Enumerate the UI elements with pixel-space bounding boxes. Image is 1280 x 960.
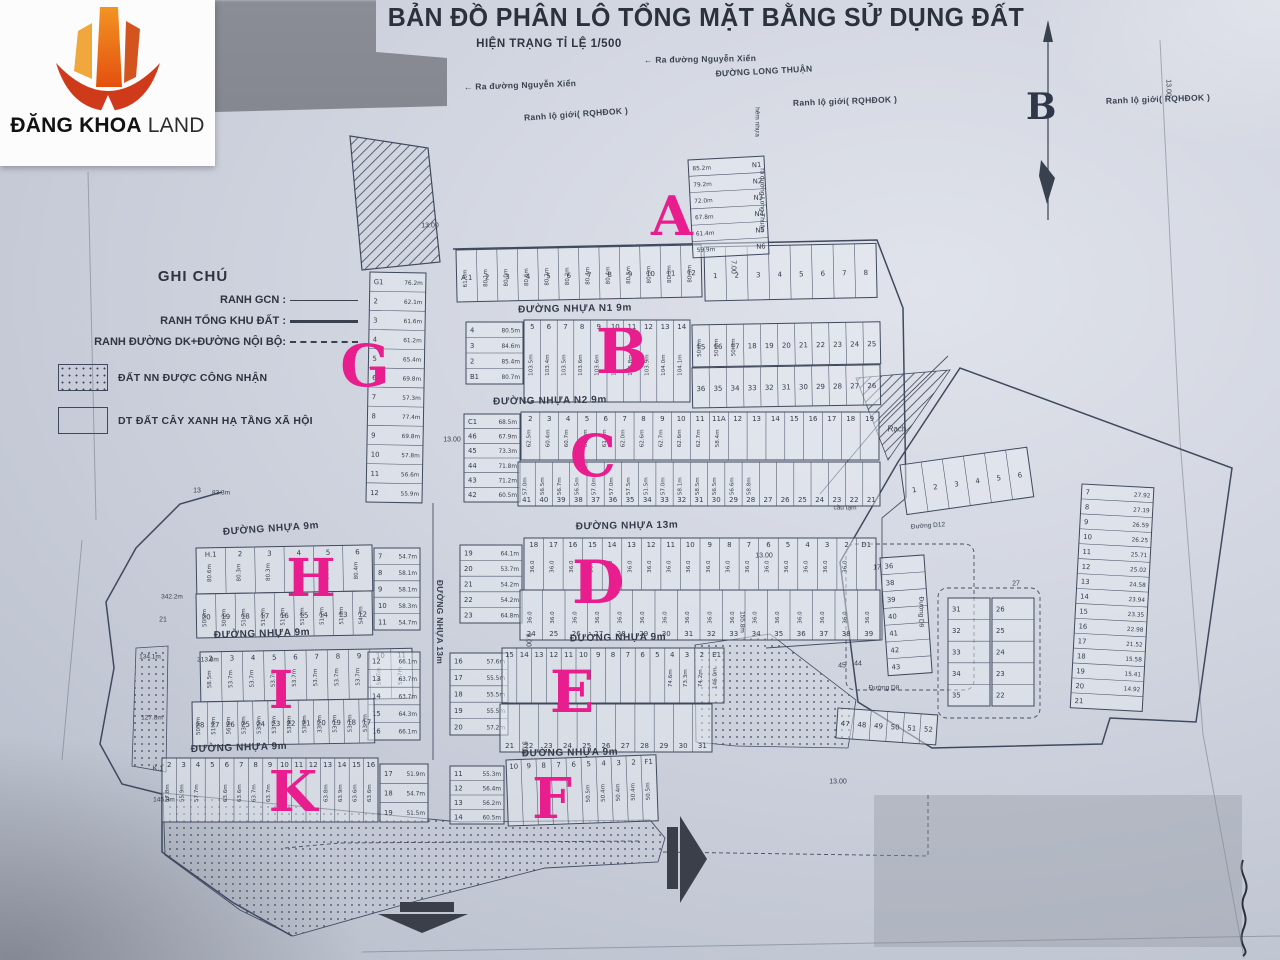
lot-area: 54.7m: [406, 792, 425, 798]
lot-area: 80.6m: [207, 564, 213, 582]
lot-area: 36.0: [804, 560, 810, 573]
lot-area: 69.8m: [402, 434, 421, 440]
lot-area: 61.0m: [583, 429, 589, 447]
lot-number: 7: [314, 653, 319, 661]
lot-number: 5: [326, 549, 331, 557]
lot-number: 12: [549, 651, 558, 659]
lot-number: 6: [571, 761, 576, 769]
lot-number: 9: [357, 652, 362, 660]
lot-number: 23: [833, 341, 842, 349]
lot-area: 63.7m: [398, 677, 417, 683]
lot-area: 36.0: [842, 611, 848, 624]
lot-area: 61.6m: [404, 319, 423, 325]
block-strip-d-west-col: 1964.1m2053.7m2154.2m2254.2m2364.8m: [460, 545, 522, 623]
lot-area: 23.94: [1128, 597, 1145, 604]
block-strip-f-west-col: 1155.3m1256.4m1356.2m1460.5m: [450, 766, 504, 824]
block-strip-k-row: 234567891011121314151657.8m55.9m57.7m63.…: [162, 758, 378, 822]
block-strip-c-west-col: C168.5m4667.9m4573.3m4471.8m4371.2m4260.…: [464, 414, 520, 502]
lot-number: 8: [1085, 503, 1090, 511]
land-subdivision-map-photo: A.12345678910111261.0m80.1m80.0m80.6m80.…: [0, 0, 1280, 960]
block-strip-east-mid-col1: 36383940414243: [880, 555, 932, 676]
lot-area: 36.0: [706, 560, 712, 573]
lot-number: 3: [756, 271, 761, 279]
lot-area: 68.5m: [498, 420, 517, 426]
lot-number: 25: [996, 627, 1005, 635]
lot-area: 51.2m: [319, 607, 325, 625]
lot-area: 53.7m: [355, 668, 361, 686]
lot-area: 74.6m: [668, 669, 674, 687]
lot-area: 62.6m: [677, 429, 683, 447]
lot-number: 10: [611, 323, 620, 331]
lot-number: 4: [805, 541, 810, 549]
lot-area: 55.9m: [180, 784, 186, 802]
lot-number: 18: [1077, 652, 1086, 660]
lot-area: 26.59: [1132, 523, 1149, 530]
lot-number: 9: [526, 762, 531, 770]
lot-area: 80.5m: [667, 265, 673, 283]
lot-number: 17: [827, 415, 836, 423]
lot-number: 22: [996, 692, 1005, 700]
lot-number: 20: [464, 565, 473, 573]
lot-area: 56.6m: [401, 472, 420, 478]
block-strip-i-bottom-row: 28272625242322212019181750.8m51.4m56.6m5…: [192, 699, 375, 746]
lot-number: 35: [774, 630, 783, 638]
lot-area: 84.6m: [501, 344, 520, 350]
lot-number: 13: [661, 323, 670, 331]
lot-area: 53.7m: [249, 670, 255, 688]
paper-fold-lines: [62, 172, 96, 760]
lot-area: 80.2m: [544, 268, 550, 286]
lot-number: 52: [924, 725, 933, 734]
lot-number: 4: [470, 326, 474, 334]
lot-area: 53.7m: [272, 716, 278, 734]
lot-number: 8: [253, 761, 257, 769]
lot-number: 28: [746, 496, 755, 504]
lot-area: 33.7m: [317, 715, 323, 733]
lot-area: 36.0: [569, 560, 575, 573]
lot-area: 85.4m: [501, 359, 520, 365]
lot-area: 24.58: [1129, 582, 1146, 589]
lot-area: 23.35: [1127, 612, 1144, 619]
lot-number: 29: [639, 630, 648, 638]
lot-number: 33: [729, 630, 738, 638]
lot-area: 36.0: [775, 611, 781, 624]
lot-number: 6: [547, 323, 552, 331]
lot-number: 14: [1080, 593, 1089, 601]
lot-area: 50.8m: [714, 339, 720, 357]
lot-number: 11A: [712, 415, 726, 423]
lot-number: D1: [861, 541, 871, 549]
lot-area: 59.9m: [697, 247, 716, 254]
lot-area: 58.5m: [207, 670, 213, 688]
lot-number: 39: [557, 496, 566, 504]
lot-number: 23: [832, 496, 841, 504]
lot-number: 8: [580, 323, 584, 331]
lot-area: 57.8m: [401, 453, 420, 459]
lot-area: 103.9m: [645, 354, 651, 375]
lot-area: 62.7m: [658, 429, 664, 447]
legend-line-thick: [290, 320, 358, 323]
lot-number: 5: [372, 355, 376, 363]
lot-area: 15.41: [1124, 672, 1141, 679]
lot-area: 55.3m: [482, 772, 501, 778]
lot-number: 3: [230, 654, 235, 662]
lot-area: 58.8m: [747, 477, 753, 495]
lot-number: 31: [684, 630, 693, 638]
lot-area: 51.2m: [241, 608, 247, 626]
lot-area: 50.5m: [585, 784, 592, 802]
lot-number: 10: [378, 602, 387, 610]
lot-area: 50.2m: [222, 609, 228, 627]
lot-area: 36.0: [764, 560, 770, 573]
lot-number: 25: [549, 630, 558, 638]
lot-area: 63.6m: [367, 784, 373, 802]
lot-area: 104.1m: [678, 354, 684, 375]
lot-number: 2: [700, 651, 704, 659]
lot-area: 54.7m: [398, 620, 417, 626]
lot-number: 9: [1084, 518, 1089, 526]
lot-area: 54.7m: [398, 555, 417, 561]
block-strip-f-row: 1098765432F150.5m50.4m50.4m50.4m50.5m: [506, 755, 658, 826]
lot-number: 51: [907, 724, 916, 733]
lot-number: 5: [786, 541, 790, 549]
lot-area: 36.0: [617, 611, 623, 624]
lot-number: 13: [323, 761, 332, 769]
lot-number: 26: [996, 605, 1005, 613]
block-strip-east-row: 123456: [900, 447, 1034, 514]
lot-area: 36.0: [820, 611, 826, 624]
lot-area: 36.0: [667, 560, 673, 573]
lot-number: 2: [631, 758, 636, 766]
lot-number: 13: [1081, 578, 1090, 586]
lot-number: 19: [464, 549, 473, 557]
lot-area: 62.0m: [621, 429, 627, 447]
lot-number: 36: [608, 496, 617, 504]
lot-number: 10: [686, 541, 695, 549]
lot-area: 60.7m: [564, 429, 570, 447]
lot-number: 9: [378, 586, 382, 594]
lot-area: 103.5m: [562, 354, 568, 375]
lot-number: 5: [210, 761, 214, 769]
legend-label: RANH ĐƯỜNG DK+ĐƯỜNG NỘI BỘ:: [94, 336, 286, 348]
lot-number: 9: [371, 431, 375, 439]
lot-number: 30: [662, 630, 671, 638]
dotted-area-west: [132, 646, 168, 772]
legend-label: RANH GCN :: [220, 294, 286, 306]
lot-number: 30: [712, 496, 721, 504]
lot-number: 34: [952, 670, 961, 678]
lot-number: 2: [208, 655, 213, 663]
lot-area: 80.5m: [626, 266, 632, 284]
lot-number: 25: [798, 496, 807, 504]
north-compass: B: [1012, 8, 1092, 223]
lot-area: 57.0m: [523, 477, 529, 495]
lot-number: 8: [641, 415, 645, 423]
lot-number: 6: [372, 374, 376, 382]
lot-number: 7: [747, 541, 751, 549]
lot-area: 36.0: [549, 560, 555, 573]
lot-number: 38: [574, 496, 583, 504]
lot-number: 7: [556, 761, 561, 769]
logo-tower-icon: [48, 4, 168, 116]
lot-number: 15: [790, 415, 799, 423]
lot-area: 80.3m: [266, 563, 272, 581]
lot-number: 32: [677, 496, 686, 504]
lot-number: 12: [733, 415, 742, 423]
lot-number: 8: [541, 762, 546, 770]
lot-number: 30: [799, 383, 808, 391]
block-strip-b-east-top: 151617181920212223242550.8m50.8m50.8m: [692, 322, 881, 367]
lot-number: 5: [799, 270, 804, 278]
lot-number: 1: [713, 272, 718, 280]
lot-area: 50.8m: [196, 717, 202, 735]
lot-number: 21: [1074, 697, 1083, 705]
lot-number: C1: [468, 418, 477, 426]
lot-area: 80.6m: [524, 268, 530, 286]
lot-area: 103.6m: [595, 354, 601, 375]
lot-area: 36.0: [865, 611, 871, 624]
lot-area: 25.71: [1131, 552, 1148, 559]
lot-number: 18: [846, 415, 855, 423]
lot-number: 32: [765, 384, 774, 392]
lot-number: 15: [505, 651, 514, 659]
lot-number: 39: [864, 630, 873, 638]
lot-area: 80.4m: [585, 267, 591, 285]
lot-number: 7: [1085, 488, 1090, 496]
lot-area: 56.2m: [482, 801, 501, 807]
lot-area: 21.52: [1126, 642, 1143, 649]
lot-number: 19: [765, 342, 774, 350]
lot-number: 10: [1083, 533, 1092, 541]
lot-number: 18: [384, 790, 393, 798]
lot-number: 5: [586, 760, 591, 768]
lot-number: 17: [454, 674, 463, 682]
lot-area: 36.0: [572, 611, 578, 624]
lot-area: 36.0: [745, 560, 751, 573]
lot-area: 63.9m: [338, 784, 344, 802]
lot-number: 2: [470, 357, 474, 365]
lot-area: 76.2m: [404, 281, 423, 287]
lot-number: 43: [891, 663, 900, 672]
lot-number: 6: [293, 653, 298, 661]
lot-number: 20: [1075, 682, 1084, 690]
lot-number: 2: [238, 550, 243, 558]
lot-strips: A.12345678910111261.0m80.1m80.0m80.6m80.…: [162, 156, 1154, 826]
lot-area: 80.1m: [483, 269, 489, 287]
lot-number: 31: [952, 605, 961, 613]
block-strip-c-bottom-row: 4140393837363534333231302928272625242322…: [518, 462, 880, 506]
lot-area: 50.4m: [630, 783, 637, 801]
lot-number: 4: [373, 336, 377, 344]
lot-area: 80.9m: [687, 265, 693, 283]
lot-area: 50.8m: [697, 339, 703, 357]
lot-number: 4: [601, 759, 606, 767]
lot-area: 77.4m: [402, 415, 421, 421]
legend-label: RANH TỔNG KHU ĐẤT :: [160, 315, 286, 327]
lot-number: 35: [626, 496, 635, 504]
block-strip-k-east-col: 1751.9m1854.7m1951.5m: [380, 764, 428, 822]
photo-glare-patch: [874, 795, 1242, 947]
lot-area: 51.2m: [261, 608, 267, 626]
lot-area: 103.6m: [578, 354, 584, 375]
logo-wordmark: ĐĂNG KHOA LAND: [10, 114, 204, 138]
lot-area: 53.7m: [347, 714, 353, 732]
lot-area: 63.6m: [223, 784, 229, 802]
lot-number: 12: [454, 784, 463, 792]
lot-number: 26: [602, 742, 611, 750]
lot-number: 5: [585, 415, 589, 423]
lot-area: 15.58: [1125, 657, 1142, 664]
lot-area: 72.0m: [694, 198, 713, 205]
lot-number: 21: [867, 496, 876, 504]
lot-number: 5: [272, 654, 277, 662]
lot-area: 26.25: [1131, 537, 1148, 544]
lot-number: 10: [371, 451, 380, 459]
lot-number: 10: [280, 761, 289, 769]
lot-number: 4: [196, 761, 201, 769]
lot-number: 25: [582, 742, 591, 750]
lot-area: 65.4m: [403, 357, 422, 363]
lot-number: 39: [887, 596, 896, 605]
lot-area: 71.2m: [498, 479, 517, 485]
block-strip-b-row: 567891011121314103.5m103.4m103.5m103.6m1…: [524, 320, 690, 402]
lot-number: 32: [707, 630, 716, 638]
lot-number: 26: [781, 496, 790, 504]
block-strip-i-east-col: 1266.1m1363.7m1463.7m1564.3m1666.1m: [368, 652, 420, 740]
lot-area: 56.6m: [729, 477, 735, 495]
lot-number: 24: [527, 630, 536, 638]
lot-number: 21: [799, 341, 808, 349]
lot-area: 36.0: [628, 560, 634, 573]
lot-area: 56.5m: [540, 477, 546, 495]
lot-number: 13: [372, 675, 381, 683]
lot-number: 19: [384, 809, 393, 817]
lot-number: 19: [865, 415, 874, 423]
lot-area: 56.7m: [557, 477, 563, 495]
lot-area: 80.3m: [236, 564, 242, 582]
lot-number: 18: [748, 342, 757, 350]
lot-area: 53.7m: [334, 668, 340, 686]
lot-number: 3: [685, 651, 689, 659]
lot-number: 14: [454, 813, 463, 821]
lot-number: 24: [563, 742, 572, 750]
lot-number: 29: [729, 496, 738, 504]
lot-area: 53.8m: [241, 716, 247, 734]
lot-area: 57.3m: [402, 396, 421, 402]
block-strip-b-west-col: 480.5m384.6m285.4mB180.7m: [466, 322, 523, 384]
lot-number: H.1: [205, 551, 217, 559]
lot-area: 56.5m: [712, 477, 718, 495]
lot-area: 62.5m: [526, 429, 532, 447]
lot-area: 36.0: [686, 560, 692, 573]
lot-number: 28: [833, 383, 842, 391]
lot-number: 16: [454, 658, 463, 666]
lot-number: 11: [454, 770, 463, 778]
lot-number: 15: [588, 541, 597, 549]
lot-area: 36.0: [527, 611, 533, 624]
lot-area: 57.5m: [626, 477, 632, 495]
lot-number: 24: [815, 496, 824, 504]
lot-area: 69.8m: [403, 377, 422, 383]
lot-number: 24: [996, 649, 1005, 657]
lot-number: 10: [677, 415, 686, 423]
lot-area: 146.0m: [713, 668, 719, 689]
block-strip-e-top-row: 15141312111098765432E174.6m73.3m74.2m146…: [502, 648, 724, 703]
lot-area: 61.2m: [403, 338, 422, 344]
lot-area: 53.7m: [228, 670, 234, 688]
map-subtitle: HIỆN TRẠNG TỈ LỆ 1/500: [388, 36, 711, 50]
lot-area: 63.6m: [237, 784, 243, 802]
lot-number: 14: [338, 761, 347, 769]
lot-area: 57.0m: [609, 477, 615, 495]
lot-number: 35: [952, 692, 961, 700]
lot-area: 80.5m: [501, 328, 520, 334]
lot-number: 2: [735, 272, 740, 280]
lot-area: 36.0: [843, 560, 849, 573]
lot-area: 57.0m: [592, 477, 598, 495]
pen-scribble: [1241, 860, 1246, 956]
lot-area: 53.8m: [302, 715, 308, 733]
lot-area: 36.0: [530, 560, 536, 573]
lot-area: 64.8m: [500, 614, 519, 620]
lot-number: 27: [763, 496, 772, 504]
lot-number: F1: [644, 758, 653, 766]
lot-area: 27.19: [1133, 508, 1150, 515]
lot-number: 6: [766, 541, 771, 549]
lot-number: N6: [756, 242, 766, 250]
lot-area: 58.3m: [398, 604, 417, 610]
lot-number: 10: [579, 651, 588, 659]
lot-number: 42: [468, 491, 477, 499]
lot-area: 103.5m: [528, 354, 534, 375]
lot-area: 74.2m: [698, 669, 704, 687]
lot-number: 31: [782, 383, 791, 391]
lot-area: 80.2m: [565, 267, 571, 285]
lot-number: G1: [374, 278, 384, 286]
lot-number: 4: [566, 415, 571, 423]
lot-number: 37: [591, 496, 600, 504]
lot-area: 57.0m: [661, 477, 667, 495]
lot-area: 103.8m: [611, 354, 617, 375]
lot-number: 48: [857, 721, 866, 730]
lot-number: 22: [816, 341, 825, 349]
lot-number: 20: [454, 723, 463, 731]
lot-area: 36.0: [752, 611, 758, 624]
lot-number: 19: [454, 707, 463, 715]
lot-area: 27.92: [1134, 493, 1151, 500]
lot-number: 27: [594, 630, 603, 638]
lot-area: 36.0: [662, 611, 668, 624]
lot-number: 7: [622, 415, 626, 423]
lot-area: 36.0: [707, 611, 713, 624]
lot-number: 10: [509, 763, 518, 771]
block-strip-h-east-col: 754.7m858.1m958.1m1058.3m1154.7m: [374, 548, 420, 630]
lot-number: 17: [549, 541, 558, 549]
legend-title: GHI CHÚ: [128, 268, 258, 285]
lot-area: 36.0: [640, 611, 646, 624]
lot-number: 4: [251, 654, 256, 662]
lot-number: 32: [952, 627, 961, 635]
lot-number: 2: [844, 541, 848, 549]
lot-number: 18: [529, 541, 538, 549]
lot-area: 50.4m: [600, 784, 607, 802]
lot-number: 33: [952, 649, 961, 657]
lot-area: 54.7m: [358, 606, 364, 624]
block-strip-e-west-col: 1657.6m1755.5m1855.5m1955.5m2057.2m: [450, 653, 508, 735]
lot-number: 7: [239, 761, 243, 769]
lot-number: 29: [816, 383, 825, 391]
lot-area: 56.5m: [574, 477, 580, 495]
